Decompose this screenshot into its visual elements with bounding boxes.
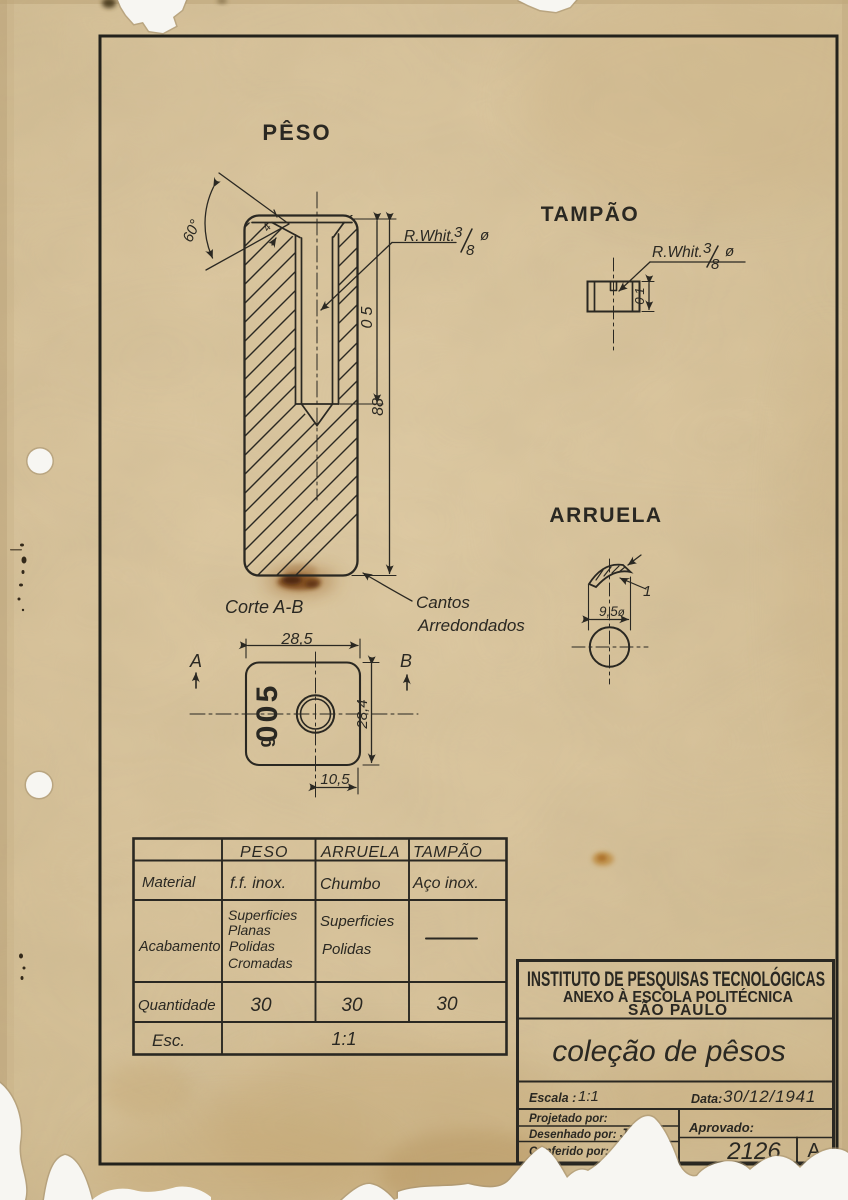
svg-text:0: 0 [359, 319, 376, 328]
svg-text:R.Whit.: R.Whit. [652, 244, 703, 261]
svg-text:Arredondados: Arredondados [417, 616, 525, 635]
svg-text:0: 0 [251, 706, 284, 723]
svg-text:Superficies: Superficies [228, 907, 297, 923]
svg-text:Polidas: Polidas [322, 941, 372, 958]
svg-text:R.Whit.: R.Whit. [404, 228, 455, 245]
svg-text:PESO: PESO [240, 844, 288, 861]
svg-text:10,5: 10,5 [320, 771, 350, 788]
svg-text:Material: Material [142, 874, 196, 891]
svg-text:1:1: 1:1 [578, 1088, 599, 1105]
svg-text:1: 1 [632, 287, 647, 294]
svg-text:3: 3 [454, 224, 463, 241]
svg-text:INSTITUTO DE PESQUISAS TECNOLÓ: INSTITUTO DE PESQUISAS TECNOLÓGICAS [527, 967, 825, 991]
svg-text:28,5: 28,5 [280, 631, 312, 648]
svg-text:Aço inox.: Aço inox. [412, 875, 479, 892]
svg-text:88: 88 [370, 398, 387, 416]
svg-text:Projetado por:: Projetado por: [529, 1113, 608, 1125]
svg-text:TAMPÃO: TAMPÃO [413, 842, 482, 861]
svg-text:B: B [400, 651, 412, 671]
svg-text:8: 8 [466, 242, 475, 259]
svg-text:8: 8 [711, 256, 720, 273]
svg-text:30: 30 [436, 994, 458, 1015]
svg-text:ARRUELA: ARRUELA [320, 844, 400, 861]
svg-text:ø: ø [725, 243, 734, 260]
svg-text:30: 30 [250, 995, 272, 1016]
svg-text:g: g [255, 737, 275, 748]
svg-text:Acabamento: Acabamento [138, 939, 220, 955]
svg-text:30/12/1941: 30/12/1941 [723, 1087, 816, 1106]
svg-text:SÃO PAULO: SÃO PAULO [628, 1001, 728, 1019]
svg-text:coleção de pêsos: coleção de pêsos [552, 1035, 786, 1068]
svg-text:Polidas: Polidas [229, 938, 275, 954]
svg-text:f.f. inox.: f.f. inox. [230, 875, 286, 892]
svg-text:30: 30 [341, 995, 363, 1016]
svg-text:Planas: Planas [228, 922, 271, 938]
svg-text:Cromadas: Cromadas [228, 955, 293, 971]
svg-text:PÊSO: PÊSO [262, 120, 331, 145]
svg-text:Corte A-B: Corte A-B [225, 597, 303, 617]
svg-text:1: 1 [643, 583, 651, 600]
svg-text:Chumbo: Chumbo [320, 876, 381, 893]
svg-text:Quantidade: Quantidade [138, 997, 216, 1014]
svg-text:5: 5 [251, 686, 284, 703]
svg-text:5: 5 [359, 306, 376, 315]
svg-text:28,4: 28,4 [354, 699, 371, 729]
svg-text:1:1: 1:1 [331, 1029, 356, 1049]
svg-text:Cantos: Cantos [416, 593, 470, 612]
svg-text:0: 0 [632, 297, 647, 305]
svg-text:Superficies: Superficies [320, 913, 395, 930]
svg-text:3: 3 [703, 240, 712, 257]
svg-text:Escala :: Escala : [529, 1091, 576, 1105]
svg-text:A: A [189, 651, 202, 671]
svg-text:ø: ø [480, 227, 489, 244]
svg-text:Aprovado:: Aprovado: [688, 1120, 754, 1135]
svg-text:9,5ø: 9,5ø [599, 604, 625, 619]
svg-text:Esc.: Esc. [152, 1031, 185, 1050]
svg-text:Data:: Data: [691, 1092, 722, 1106]
svg-text:ARRUELA: ARRUELA [549, 504, 662, 527]
svg-text:TAMPÃO: TAMPÃO [541, 203, 639, 226]
